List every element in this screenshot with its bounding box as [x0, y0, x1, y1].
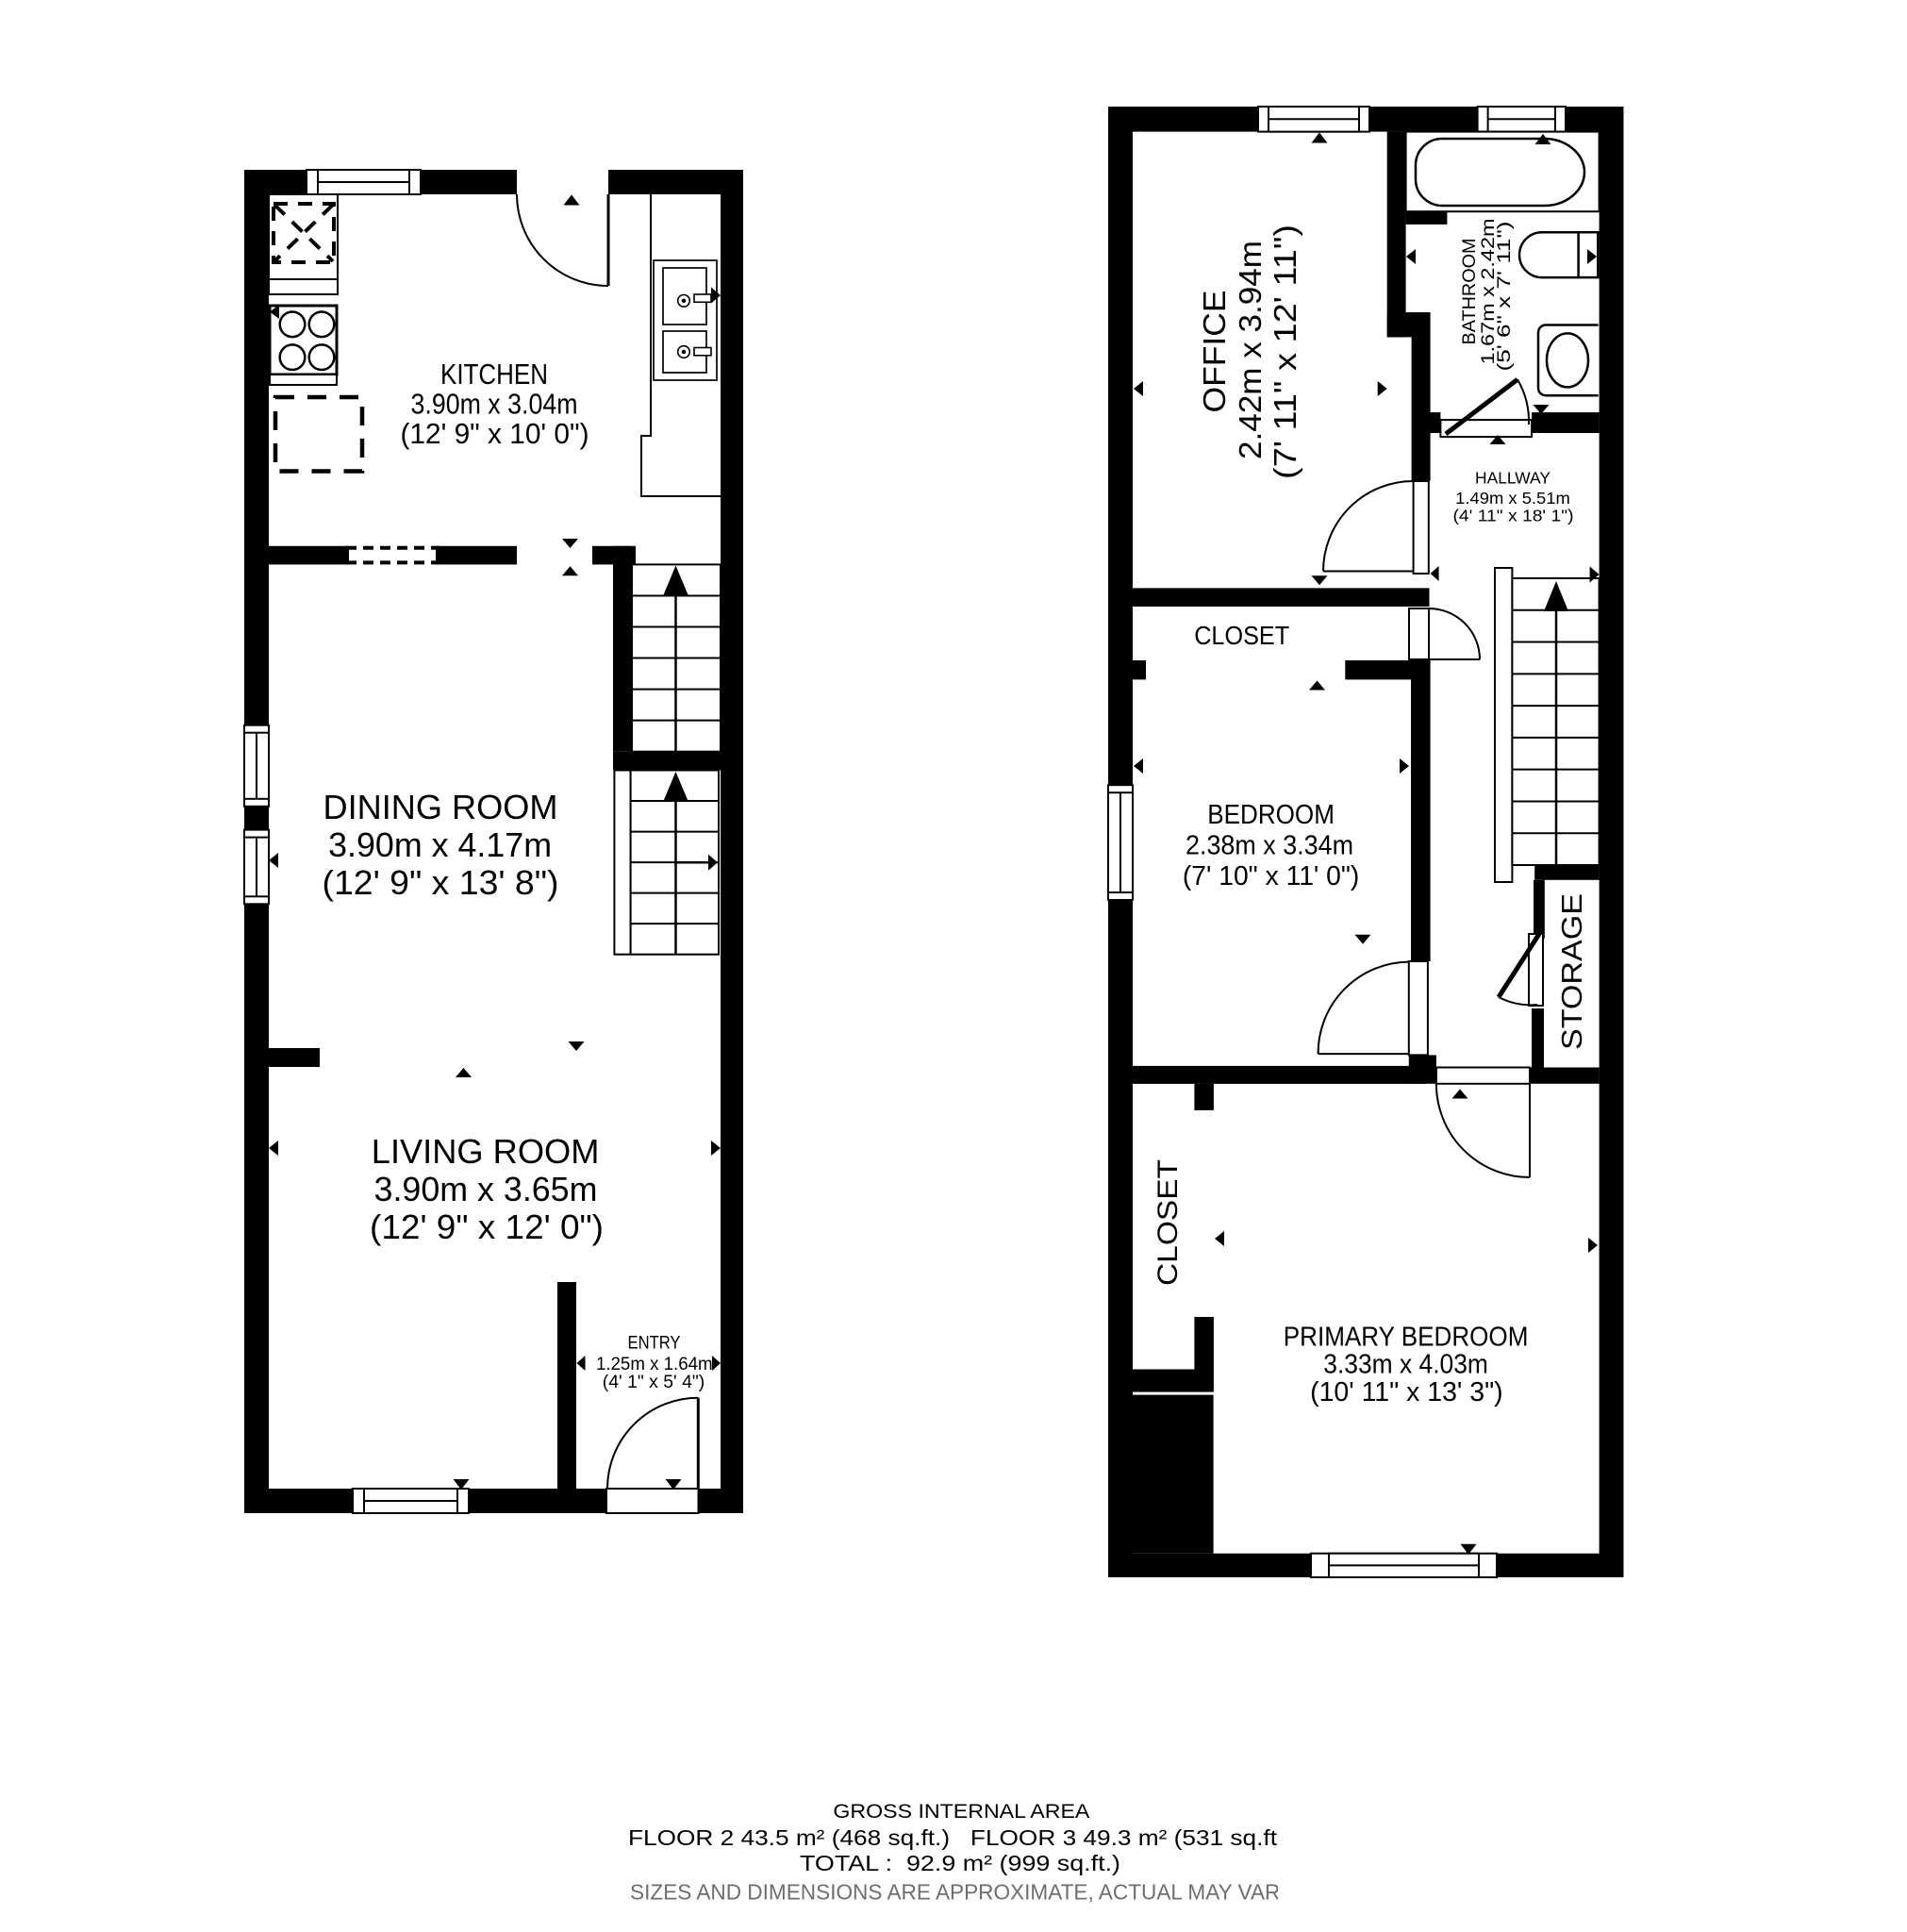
svg-text:GROSS INTERNAL AREA: GROSS INTERNAL AREA: [833, 1801, 1089, 1823]
svg-text:(12' 9" x 13' 8"): (12' 9" x 13' 8"): [323, 863, 559, 902]
svg-text:DINING ROOM: DINING ROOM: [323, 788, 558, 826]
svg-text:STORAGE: STORAGE: [1555, 893, 1588, 1050]
svg-text:3.90m x 3.65m: 3.90m x 3.65m: [374, 1170, 598, 1208]
svg-text:KITCHEN: KITCHEN: [440, 358, 548, 391]
svg-text:HALLWAY: HALLWAY: [1475, 468, 1550, 487]
svg-text:(12' 9" x 12' 0"): (12' 9" x 12' 0"): [370, 1207, 604, 1246]
svg-text:(4' 1" x 5' 4"): (4' 1" x 5' 4"): [603, 1372, 705, 1392]
svg-text:3.33m x 4.03m: 3.33m x 4.03m: [1323, 1350, 1488, 1380]
svg-text:(7' 10" x 11' 0"): (7' 10" x 11' 0"): [1183, 861, 1360, 891]
svg-text:(7' 11" x 12' 11"): (7' 11" x 12' 11"): [1268, 225, 1302, 479]
svg-text:FLOOR 2 43.5 m² (468 sq.ft.): FLOOR 2 43.5 m² (468 sq.ft.) FLOOR 3 49.…: [628, 1825, 1292, 1850]
svg-text:1.49m x 5.51m: 1.49m x 5.51m: [1455, 489, 1570, 508]
svg-text:BATHROOM: BATHROOM: [1460, 239, 1480, 345]
svg-text:ENTRY: ENTRY: [628, 1333, 681, 1354]
svg-text:3.90m x 4.17m: 3.90m x 4.17m: [328, 825, 552, 864]
svg-text:(10' 11" x 13' 3"): (10' 11" x 13' 3"): [1310, 1377, 1503, 1407]
svg-text:OFFICE: OFFICE: [1197, 291, 1232, 413]
svg-text:(4' 11" x 18' 1"): (4' 11" x 18' 1"): [1453, 507, 1574, 525]
svg-text:CLOSET: CLOSET: [1152, 1159, 1184, 1286]
svg-text:TOTAL : 92.9 m² (999 sq.ft.): TOTAL : 92.9 m² (999 sq.ft.): [800, 1851, 1120, 1875]
svg-text:BEDROOM: BEDROOM: [1207, 800, 1335, 830]
svg-text:2.42m x 3.94m: 2.42m x 3.94m: [1233, 241, 1268, 459]
svg-text:3.90m x 3.04m: 3.90m x 3.04m: [411, 387, 578, 420]
svg-text:2.38m x 3.34m: 2.38m x 3.34m: [1186, 831, 1353, 861]
svg-text:SIZES AND DIMENSIONS ARE APPRO: SIZES AND DIMENSIONS ARE APPROXIMATE, AC…: [630, 1879, 1294, 1904]
svg-text:(5' 6" x 7' 11"): (5' 6" x 7' 11"): [1495, 222, 1515, 372]
svg-text:LIVING ROOM: LIVING ROOM: [372, 1132, 600, 1171]
svg-text:CLOSET: CLOSET: [1194, 621, 1289, 650]
svg-text:(12' 9" x 10' 0"): (12' 9" x 10' 0"): [401, 417, 589, 450]
svg-text:PRIMARY BEDROOM: PRIMARY BEDROOM: [1284, 1322, 1529, 1352]
